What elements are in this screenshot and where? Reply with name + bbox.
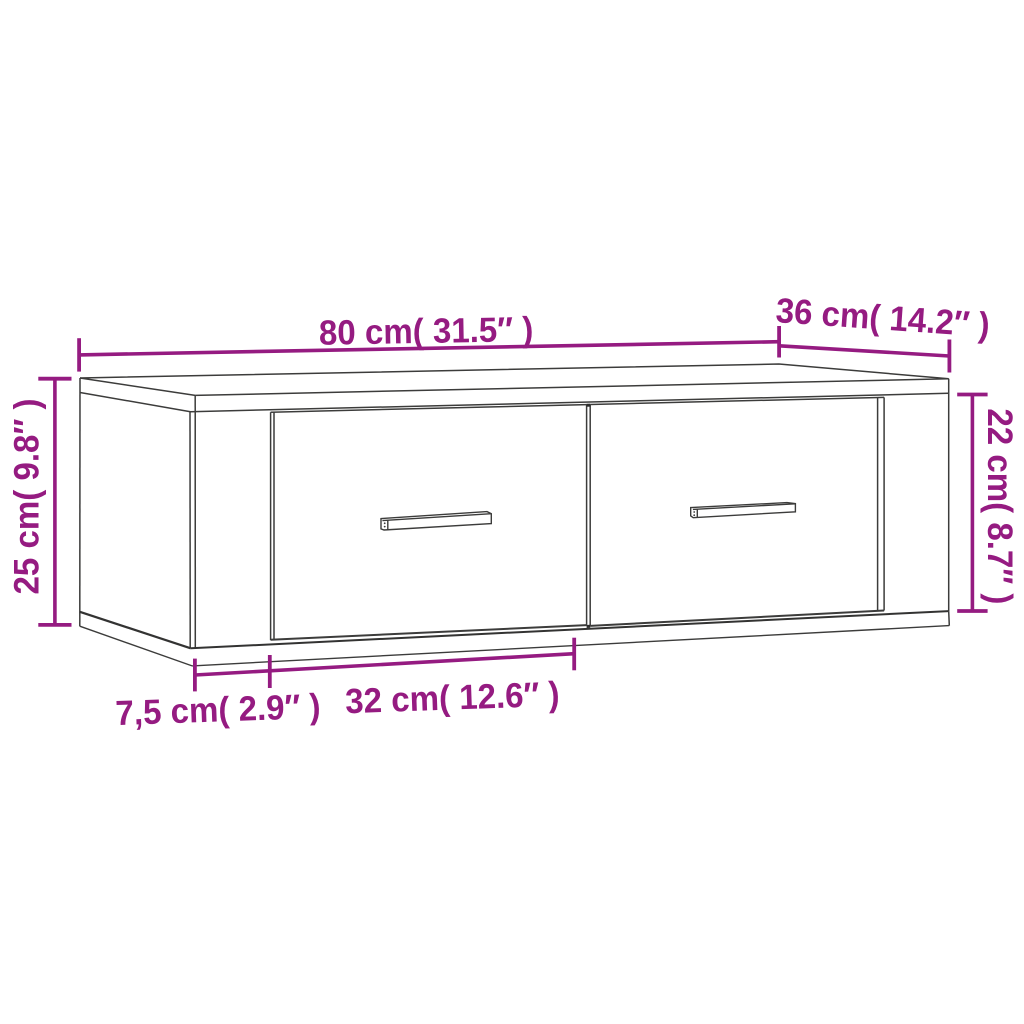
svg-text:25 cm( 9.8″ ): 25 cm( 9.8″ ) xyxy=(8,399,47,595)
svg-text:22 cm( 8.7″ ): 22 cm( 8.7″ ) xyxy=(980,408,1019,604)
svg-text:32 cm( 12.6″ ): 32 cm( 12.6″ ) xyxy=(345,675,561,722)
svg-text:80 cm( 31.5″ ): 80 cm( 31.5″ ) xyxy=(319,310,534,353)
svg-text:7,5 cm( 2.9″ ): 7,5 cm( 2.9″ ) xyxy=(115,687,321,733)
svg-text:36 cm( 14.2″ ): 36 cm( 14.2″ ) xyxy=(774,291,991,345)
